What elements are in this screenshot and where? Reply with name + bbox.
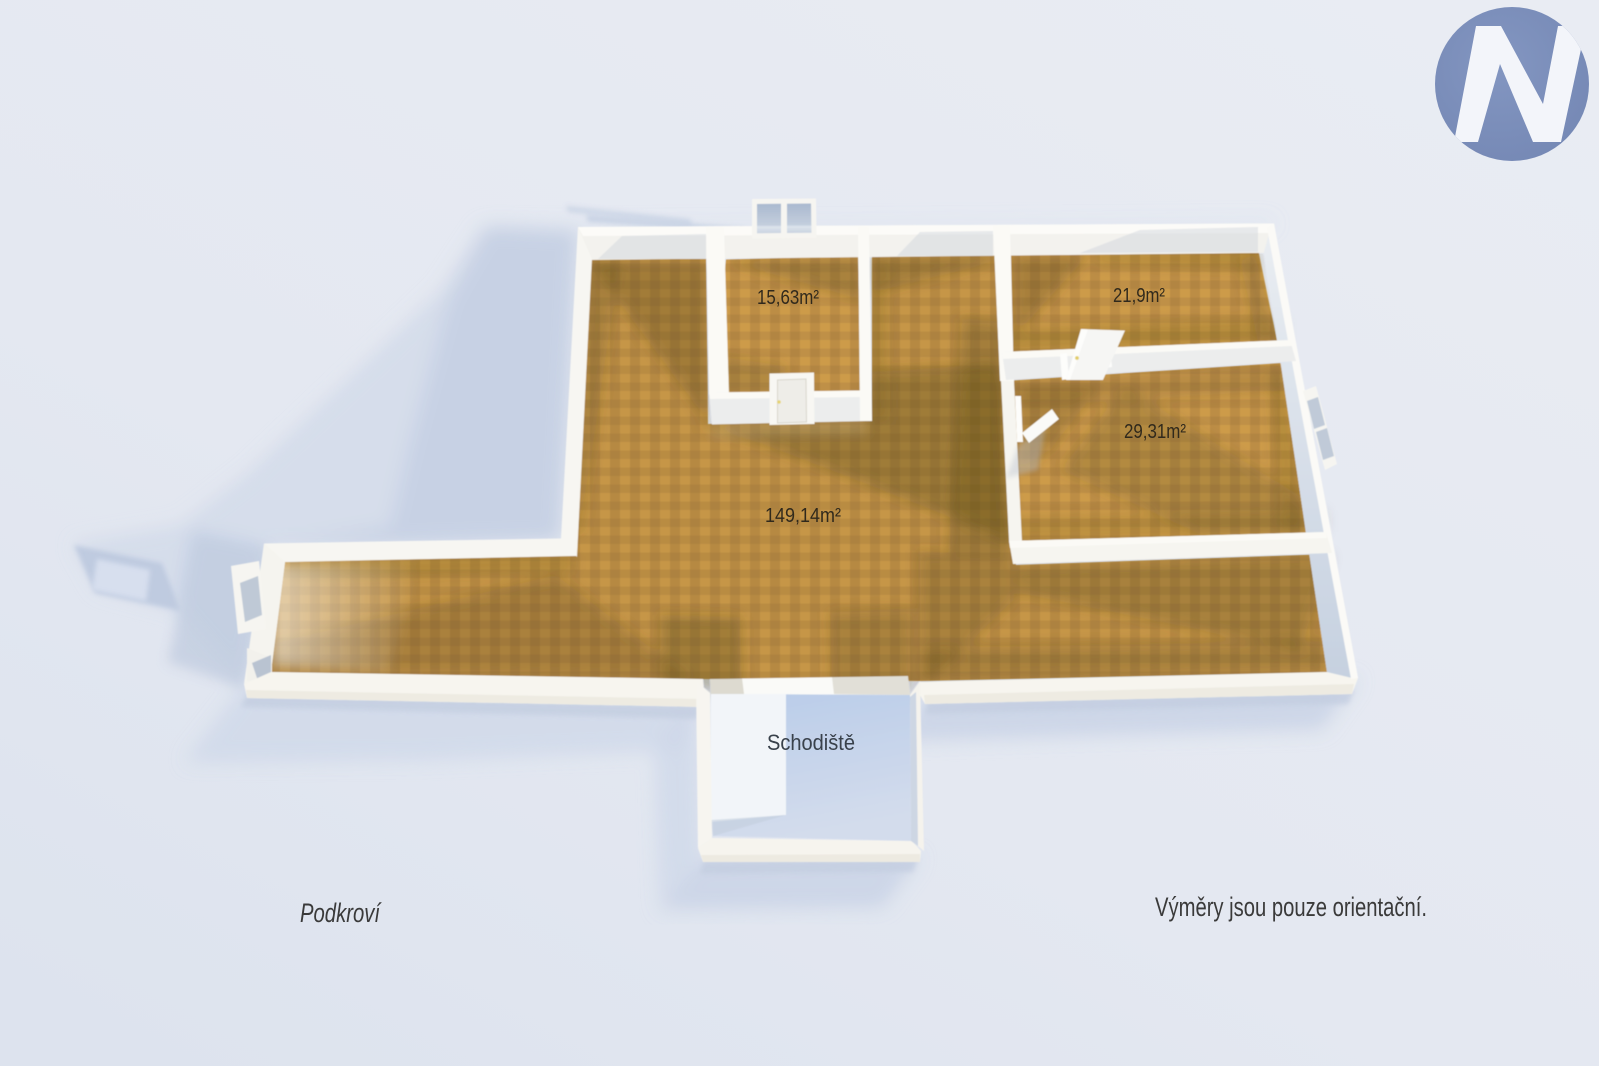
svg-text:149,14m²: 149,14m² [765,505,841,527]
svg-text:Podkroví: Podkroví [300,898,382,928]
svg-text:Výměry jsou pouze orientační.: Výměry jsou pouze orientační. [1155,892,1427,922]
svg-text:29,31m²: 29,31m² [1124,421,1186,443]
svg-text:15,63m²: 15,63m² [757,287,819,309]
svg-text:21,9m²: 21,9m² [1113,285,1165,307]
svg-text:Schodiště: Schodiště [767,730,855,755]
